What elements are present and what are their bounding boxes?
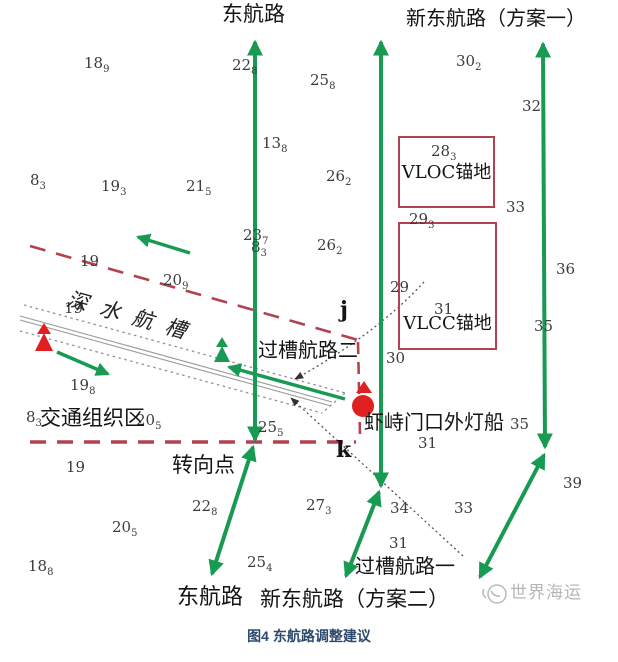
- depth-sounding: 39: [563, 474, 582, 492]
- figure-caption: 图4 东航路调整建议: [0, 626, 618, 646]
- label-cross-route-1: 过槽航路一: [355, 555, 455, 577]
- depth-sounding: 138: [262, 134, 287, 155]
- watermark-text: 世界海运: [510, 584, 582, 603]
- label-vloc-anchorage: VLOC锚地: [399, 163, 494, 183]
- depth-sounding: 188: [28, 557, 53, 578]
- depth-sounding: 189: [84, 54, 109, 75]
- depth-sounding: 302: [456, 52, 481, 73]
- depth-sounding: 83: [251, 238, 267, 259]
- depth-sounding: 34: [390, 499, 409, 517]
- depth-sounding: 32: [522, 97, 541, 115]
- depth-sounding: 209: [163, 271, 188, 292]
- depth-sounding: 31: [418, 434, 437, 452]
- depth-sounding: 262: [317, 236, 342, 257]
- label-new-east-route-plan2: 新东航路（方案二）: [260, 588, 449, 611]
- label-new-east-route-plan1: 新东航路（方案一）: [406, 7, 586, 29]
- depth-sounding: 205: [112, 518, 137, 539]
- depth-sounding: 215: [186, 177, 211, 198]
- label-lightship: 虾峙门口外灯船: [364, 411, 504, 433]
- depth-sounding: 36: [556, 260, 575, 278]
- depth-sounding: 293: [409, 210, 434, 231]
- depth-sounding: 262: [326, 167, 351, 188]
- depth-sounding: 83: [30, 171, 46, 192]
- depth-sounding: 273: [306, 496, 331, 517]
- depth-sounding: 19: [66, 458, 85, 476]
- label-turning-point: 转向点: [172, 454, 235, 477]
- label-traffic-zone: 交通组织区: [40, 407, 145, 430]
- depth-sounding: 19: [80, 252, 99, 270]
- depth-sounding: 255: [258, 418, 283, 439]
- soundings-layer: 1892282583023213883193215262283332932378…: [0, 0, 618, 662]
- depth-sounding: 254: [247, 553, 272, 574]
- depth-sounding: 283: [431, 142, 456, 163]
- figure-east-route-adjustment: 1892282583023213883193215262283332932378…: [0, 0, 618, 662]
- depth-sounding: 35: [534, 317, 553, 335]
- depth-sounding: 29: [390, 278, 409, 296]
- label-east-route-top: 东航路: [222, 3, 285, 26]
- label-east-route-bottom: 东航路: [177, 586, 243, 610]
- depth-sounding: 31: [389, 534, 408, 552]
- depth-sounding: 228: [192, 497, 217, 518]
- depth-sounding: 193: [101, 177, 126, 198]
- depth-sounding: 33: [506, 198, 525, 216]
- depth-sounding: 228: [232, 56, 257, 77]
- depth-sounding: 35: [510, 415, 529, 433]
- label-point-k: k: [336, 438, 351, 462]
- depth-sounding: 198: [70, 376, 95, 397]
- label-point-j: j: [340, 298, 348, 322]
- depth-sounding: 258: [310, 71, 335, 92]
- depth-sounding: 30: [386, 349, 405, 367]
- depth-sounding: 33: [454, 499, 473, 517]
- label-vlcc-anchorage: VLCC锚地: [399, 314, 496, 334]
- label-cross-route-2: 过槽航路二: [258, 339, 358, 361]
